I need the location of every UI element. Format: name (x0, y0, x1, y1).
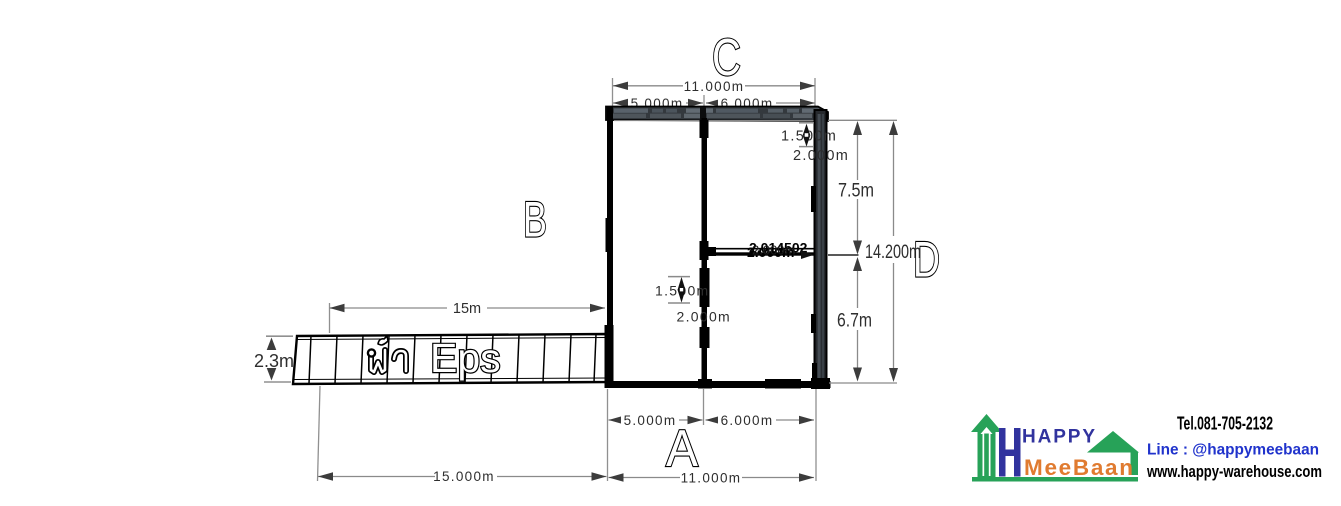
svg-text:HAPPY: HAPPY (1022, 427, 1095, 448)
svg-text:7.5m: 7.5m (838, 180, 874, 202)
svg-text:www.happy-warehouse.com: www.happy-warehouse.com (1146, 462, 1322, 481)
svg-text:6.000m: 6.000m (721, 413, 774, 428)
svg-text:MeeBaan: MeeBaan (1024, 455, 1133, 480)
svg-text:5.000m: 5.000m (624, 413, 677, 428)
svg-text:15m: 15m (453, 301, 481, 317)
svg-text:2.3m: 2.3m (254, 351, 294, 371)
svg-text:11.000m: 11.000m (681, 471, 742, 486)
svg-text:2.000m: 2.000m (677, 309, 732, 325)
svg-text:15.000m: 15.000m (433, 469, 495, 484)
svg-text:2.000m: 2.000m (752, 243, 795, 258)
svg-text:2.000m: 2.000m (793, 148, 849, 164)
svg-text:Tel.081-705-2132: Tel.081-705-2132 (1177, 414, 1273, 434)
svg-text:Eps: Eps (430, 335, 501, 381)
svg-text:14.200m: 14.200m (865, 241, 921, 263)
svg-text:6.7m: 6.7m (837, 310, 872, 332)
svg-text:Line : @happymeebaan: Line : @happymeebaan (1147, 442, 1319, 459)
svg-text:11.000m: 11.000m (684, 79, 745, 94)
svg-text:B: B (523, 192, 547, 248)
